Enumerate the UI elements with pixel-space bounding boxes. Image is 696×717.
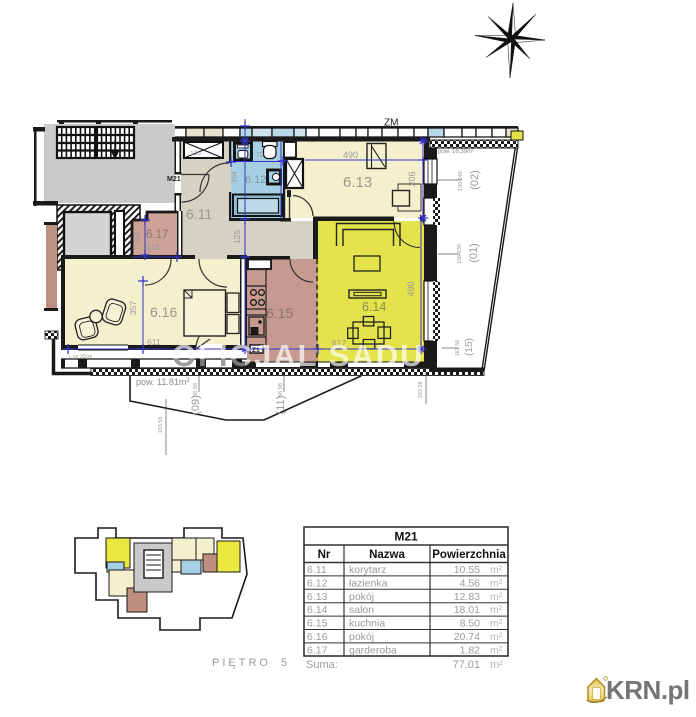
svg-text:113: 113 — [132, 232, 141, 244]
svg-text:(01): (01) — [468, 243, 480, 263]
svg-text:m²: m² — [490, 659, 503, 671]
svg-text:12.83: 12.83 — [454, 591, 480, 603]
svg-text:6.17: 6.17 — [146, 229, 168, 241]
svg-text:18.01: 18.01 — [454, 604, 480, 616]
svg-text:611: 611 — [147, 337, 161, 347]
svg-text:1.82: 1.82 — [460, 644, 481, 656]
svg-text:PIĘTRO: PIĘTRO — [212, 657, 271, 669]
svg-text:salon: salon — [349, 604, 374, 616]
svg-text:490: 490 — [406, 281, 416, 296]
svg-text:136: 136 — [190, 150, 201, 157]
svg-text:161 56: 161 56 — [455, 340, 461, 357]
svg-text:m²: m² — [490, 618, 503, 630]
svg-text:ZM: ZM — [384, 118, 398, 129]
svg-text:56 98: 56 98 — [278, 383, 284, 397]
svg-text:kuchnia: kuchnia — [349, 618, 385, 630]
svg-text:m²: m² — [490, 644, 503, 656]
svg-text:72: 72 — [256, 152, 264, 159]
svg-text:77.01: 77.01 — [452, 659, 480, 671]
svg-text:6.16: 6.16 — [307, 631, 328, 643]
svg-text:(02): (02) — [469, 170, 481, 190]
svg-text:m²: m² — [490, 564, 503, 576]
svg-text:korytarz: korytarz — [349, 564, 386, 576]
svg-text:490: 490 — [343, 150, 358, 160]
svg-text:łazienka: łazienka — [349, 577, 388, 589]
svg-text:M21: M21 — [394, 530, 418, 544]
svg-text:pokój: pokój — [349, 591, 374, 603]
svg-text:6.15: 6.15 — [307, 618, 328, 630]
svg-text:20.74: 20.74 — [454, 631, 480, 643]
svg-text:125: 125 — [232, 230, 242, 244]
svg-text:156 236: 156 236 — [457, 244, 463, 264]
svg-text:pow. 11.81m2: pow. 11.81m2 — [136, 377, 190, 387]
svg-text:m²: m² — [490, 604, 503, 616]
svg-text:8.50: 8.50 — [460, 618, 481, 630]
svg-text:4.56: 4.56 — [460, 577, 481, 589]
svg-text:garderoba: garderoba — [349, 644, 397, 656]
svg-text:Nr: Nr — [318, 549, 331, 561]
svg-text:6.12: 6.12 — [245, 174, 266, 186]
svg-text:Suma:: Suma: — [306, 659, 338, 671]
svg-text:(09): (09) — [190, 395, 202, 415]
svg-text:6.11: 6.11 — [307, 564, 327, 576]
svg-text:Powierzchnia: Powierzchnia — [432, 549, 506, 561]
svg-text:(11): (11) — [275, 396, 287, 415]
svg-text:m²: m² — [490, 577, 503, 589]
svg-text:206: 206 — [407, 171, 417, 186]
svg-text:6.14: 6.14 — [307, 604, 328, 616]
svg-text:6.13: 6.13 — [343, 174, 372, 191]
svg-text:6.12: 6.12 — [307, 577, 328, 589]
svg-text:5: 5 — [281, 657, 287, 669]
svg-text:pow. 16.39m²: pow. 16.39m² — [438, 149, 474, 155]
svg-text:6.14: 6.14 — [362, 300, 386, 314]
svg-text:m²: m² — [490, 591, 503, 603]
svg-text:103 28: 103 28 — [418, 382, 424, 399]
svg-text:KRN.pl: KRN.pl — [606, 675, 690, 705]
svg-text:M21: M21 — [167, 176, 181, 183]
svg-text:(15): (15) — [464, 338, 475, 356]
svg-text:6.11: 6.11 — [186, 206, 212, 222]
svg-text:6.16: 6.16 — [150, 304, 177, 320]
svg-text:103 56: 103 56 — [158, 417, 164, 434]
svg-text:10.55: 10.55 — [454, 564, 480, 576]
svg-text:L po 30cm: L po 30cm — [69, 354, 92, 360]
svg-text:6.17: 6.17 — [307, 644, 328, 656]
svg-text:pokój: pokój — [349, 631, 374, 643]
svg-text:164: 164 — [232, 171, 239, 183]
svg-text:6.13: 6.13 — [307, 591, 328, 603]
svg-text:6.15: 6.15 — [266, 305, 293, 321]
svg-text:56 98: 56 98 — [193, 383, 199, 397]
svg-text:156 146: 156 146 — [458, 171, 464, 191]
svg-text:m²: m² — [490, 631, 503, 643]
svg-text:Nazwa: Nazwa — [369, 549, 405, 561]
svg-text:143: 143 — [146, 243, 160, 252]
svg-text:357: 357 — [128, 301, 138, 315]
